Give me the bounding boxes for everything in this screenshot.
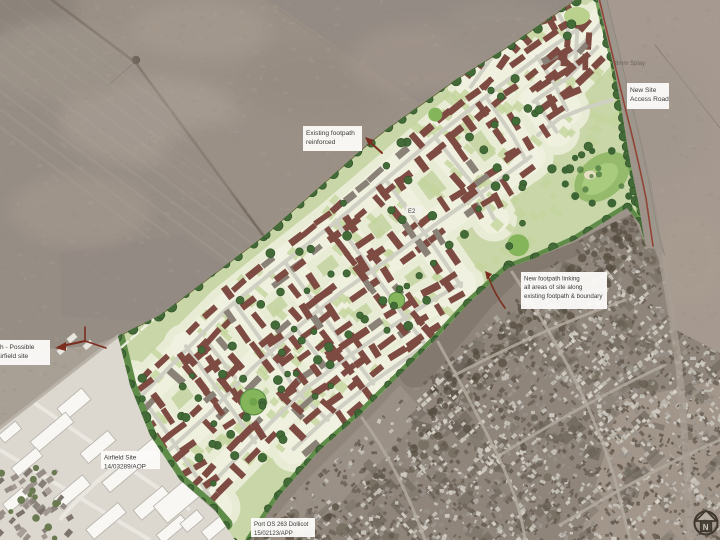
svg-text:Port OS 263 Dollicot: Port OS 263 Dollicot (254, 522, 309, 528)
svg-text:14/03289/AOP: 14/03289/AOP (104, 464, 146, 471)
svg-text:tpath - Possible: tpath - Possible (0, 344, 35, 351)
svg-text:to Airfield site: to Airfield site (0, 353, 29, 360)
svg-text:15/02123/APP: 15/02123/APP (254, 531, 293, 537)
svg-text:8mm Splay: 8mm Splay (615, 61, 645, 67)
svg-text:existing footpath & boundary: existing footpath & boundary (524, 293, 603, 300)
svg-text:N: N (703, 523, 709, 532)
svg-text:New Site: New Site (630, 87, 657, 94)
svg-text:reinforced: reinforced (306, 139, 336, 146)
svg-text:all areas of site along: all areas of site along (524, 284, 583, 291)
svg-text:Access Road: Access Road (630, 96, 669, 103)
svg-text:Existing footpath: Existing footpath (306, 130, 355, 137)
svg-text:Airfield Site: Airfield Site (104, 455, 137, 462)
svg-text:New footpath linking: New footpath linking (524, 275, 580, 282)
svg-text:E2: E2 (408, 209, 416, 215)
